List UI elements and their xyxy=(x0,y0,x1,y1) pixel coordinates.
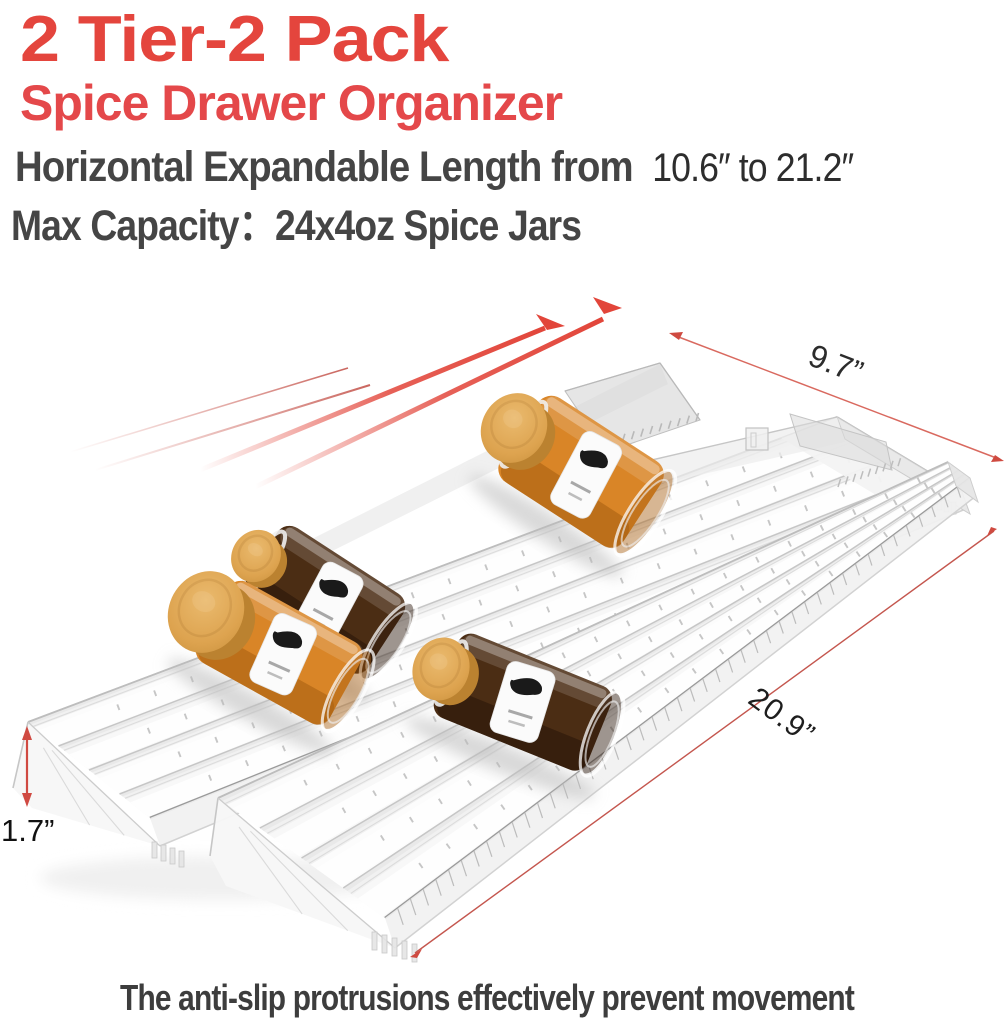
svg-text:9.7”: 9.7” xyxy=(804,337,868,390)
svg-text:20.9”: 20.9” xyxy=(742,681,821,751)
svg-text:1.7”: 1.7” xyxy=(1,813,54,848)
